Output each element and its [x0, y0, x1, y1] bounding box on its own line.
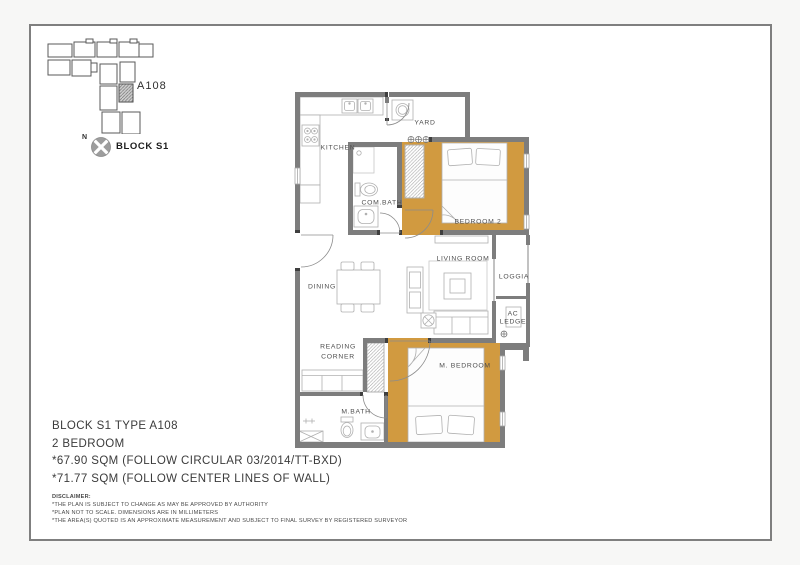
- room-label-kitchen: KITCHEN: [321, 145, 356, 152]
- room-label-reading-1: READING: [320, 344, 356, 351]
- room-label-m-bedroom: M. BEDROOM: [439, 363, 491, 370]
- title-line-unit: BLOCK S1 TYPE A108: [52, 418, 342, 436]
- title-line-type: 2 BEDROOM: [52, 436, 342, 454]
- room-label-m-bath: M.BATH: [341, 409, 370, 416]
- stove: [302, 125, 319, 146]
- title-block: BLOCK S1 TYPE A108 2 BEDROOM *67.90 SQM …: [52, 418, 342, 488]
- floorplan-sheet: { "sheet": { "keyplan": { "north_label":…: [0, 0, 800, 565]
- unit-label: A108: [137, 80, 167, 92]
- room-label-yard: YARD: [414, 120, 435, 127]
- block-title: BLOCK S1: [116, 141, 169, 152]
- disclaimer-heading: DISCLAIMER:: [52, 493, 407, 501]
- room-label-ac-ledge-1: AC: [508, 311, 519, 318]
- disclaimer-line: *PLAN NOT TO SCALE. DIMENSIONS ARE IN MI…: [52, 509, 407, 517]
- north-label: N: [82, 134, 87, 141]
- room-label-bedroom2: BEDROOM 2: [454, 219, 501, 226]
- reading-corner-bench: [302, 370, 363, 391]
- title-line-area1: *67.90 SQM (FOLLOW CIRCULAR 03/2014/TT-B…: [52, 453, 342, 471]
- washing-machine: [392, 100, 413, 120]
- room-label-dining: DINING: [308, 284, 336, 291]
- north-compass-icon: [89, 135, 113, 159]
- living-room-furniture: [407, 236, 488, 334]
- room-label-living-room: LIVING ROOM: [436, 256, 489, 263]
- title-line-area2: *71.77 SQM (FOLLOW CENTER LINES OF WALL): [52, 471, 342, 489]
- disclaimer-line: *THE AREA(S) QUOTED IS AN APPROXIMATE ME…: [52, 517, 407, 525]
- room-label-ac-ledge-2: LEDGE: [500, 319, 527, 326]
- disclaimer-line: *THE PLAN IS SUBJECT TO CHANGE AS MAY BE…: [52, 501, 407, 509]
- room-label-loggia: LOGGIA: [499, 274, 529, 281]
- disclaimer-block: DISCLAIMER: *THE PLAN IS SUBJECT TO CHAN…: [52, 493, 407, 525]
- dining-table: [337, 262, 380, 312]
- room-label-reading-2: CORNER: [321, 354, 355, 361]
- room-label-com-bath: COM.BATH: [362, 200, 403, 207]
- key-plan-unit-a108: [119, 84, 133, 102]
- com-bath-fixtures: [353, 147, 378, 227]
